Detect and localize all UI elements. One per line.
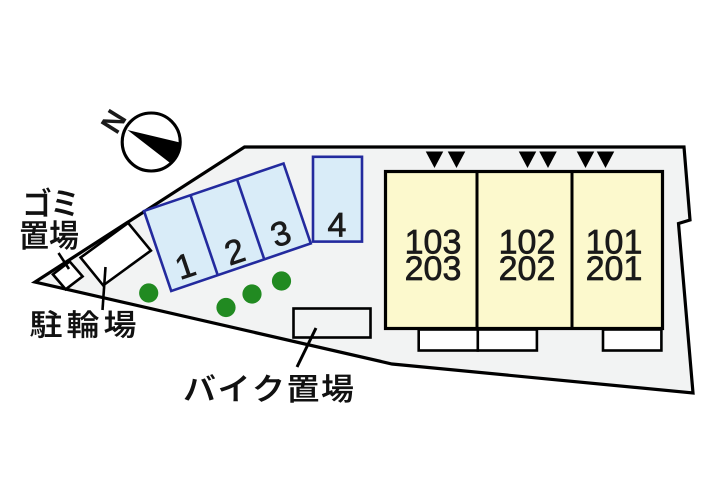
svg-text:202: 202 [499,250,556,288]
svg-text:203: 203 [405,250,462,288]
svg-text:4: 4 [328,206,347,244]
svg-text:201: 201 [586,250,643,288]
